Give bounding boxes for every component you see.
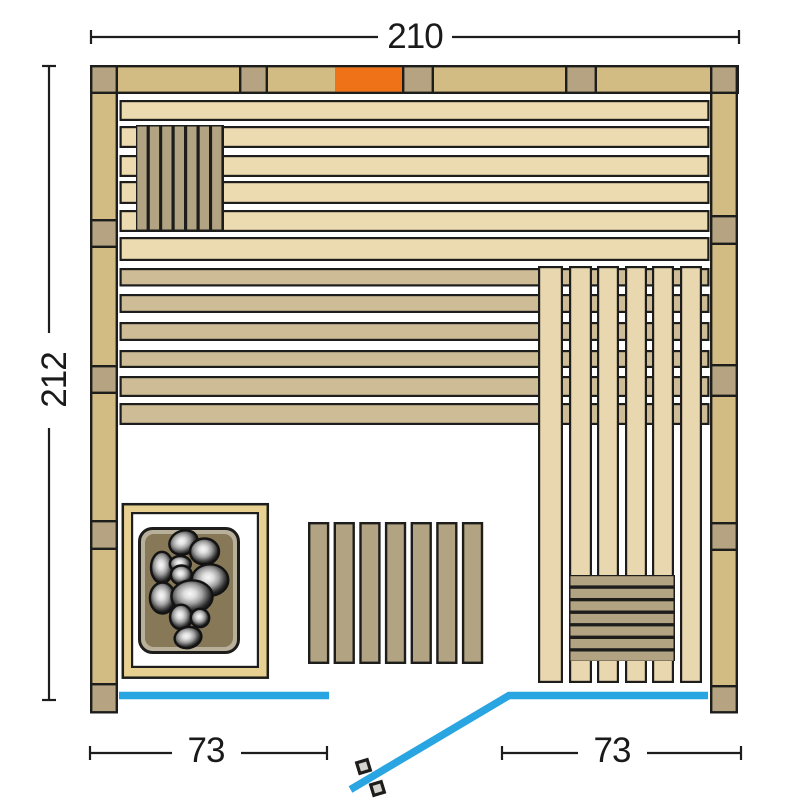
svg-text:210: 210 <box>387 17 443 56</box>
svg-text:73: 73 <box>188 731 225 770</box>
svg-text:212: 212 <box>35 352 74 407</box>
svg-text:73: 73 <box>594 731 631 770</box>
